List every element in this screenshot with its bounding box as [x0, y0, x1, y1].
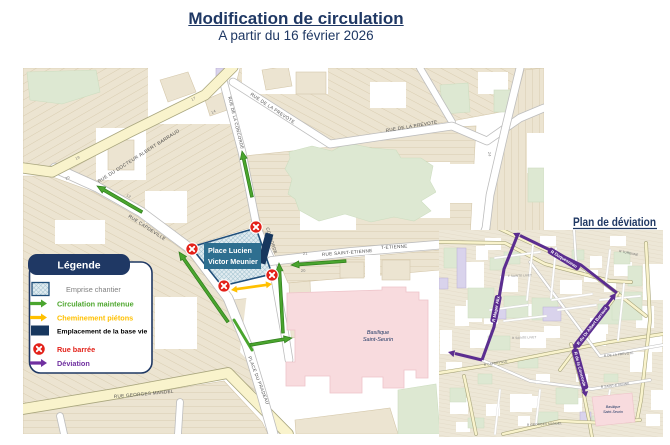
svg-text:Emprise chantier: Emprise chantier — [66, 285, 121, 294]
svg-text:Place Lucien: Place Lucien — [208, 246, 252, 255]
svg-text:Saint-Seurin: Saint-Seurin — [363, 337, 393, 343]
svg-text:Plan de déviation: Plan de déviation — [573, 215, 656, 229]
svg-text:21: 21 — [303, 252, 308, 256]
svg-text:20: 20 — [301, 269, 306, 273]
svg-text:Emplacement de la base vie: Emplacement de la base vie — [57, 329, 148, 336]
svg-text:F SAINTE LIVET: F SAINTE LIVET — [508, 273, 532, 278]
svg-text:Saint-Seurin: Saint-Seurin — [603, 410, 623, 414]
svg-text:Rue barrée: Rue barrée — [57, 345, 95, 354]
svg-text:R SAINTE LIVET: R SAINTE LIVET — [512, 335, 537, 340]
svg-text:Basilique: Basilique — [606, 405, 621, 409]
svg-text:Basilique: Basilique — [367, 330, 389, 336]
svg-text:Cheminement piétons: Cheminement piétons — [57, 314, 133, 323]
svg-text:Circulation maintenue: Circulation maintenue — [57, 300, 134, 309]
svg-text:24: 24 — [487, 152, 491, 157]
svg-text:Légende: Légende — [57, 260, 100, 272]
svg-text:Victor Meunier: Victor Meunier — [208, 257, 258, 266]
svg-text:Déviation: Déviation — [57, 359, 90, 368]
